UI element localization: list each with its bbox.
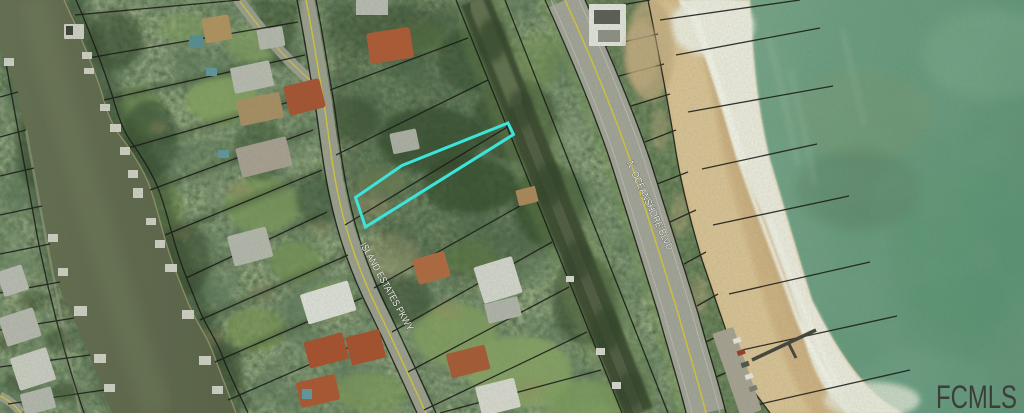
svg-text:FCMLS: FCMLS [936, 379, 1017, 413]
